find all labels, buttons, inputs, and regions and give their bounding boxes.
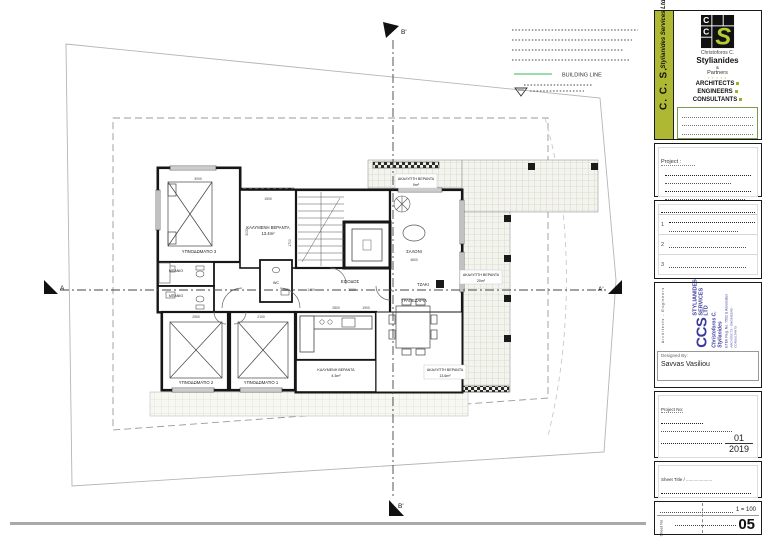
logo-right: C C S Christoforos C. Stylianides & Part…: [674, 11, 761, 139]
project-no-label: Project No:: [661, 407, 683, 413]
sheet-title-box: Sheet Title / .....................: [654, 461, 762, 498]
revision-row: 1: [659, 215, 757, 235]
svg-text:S: S: [715, 24, 731, 49]
scale-row: 1 = 100: [657, 504, 759, 516]
room-label-covered-veranda-bottom: ΚΑΛΥΜΕΝΗ ΒΕΡΑΝΤΑ: [317, 368, 355, 372]
stamp-line2: Christoforos C. Stylianides: [711, 286, 723, 348]
revision-number: 2: [661, 242, 669, 248]
room-label-open-veranda-right: ΑΚΑΛΥΠΤΗ ΒΕΡΑΝΤΑ: [427, 368, 464, 372]
fold-mark: [702, 503, 703, 533]
dim: 2550: [192, 315, 200, 319]
dim: 4600: [410, 258, 418, 262]
dim: 900: [283, 288, 289, 292]
floor-plan-canvas: B' B' A A' BUILDING LINE: [0, 0, 652, 543]
project-no-line: [661, 438, 722, 444]
scale-value: 1 = 100: [736, 507, 759, 513]
designed-by-label: Designed By:: [661, 353, 755, 358]
role-bullet-icon: [739, 98, 742, 101]
dim: 2100: [257, 315, 265, 319]
room-label-bedroom1: ΥΠΝΟΔΩΜΑΤΙΟ 1: [244, 380, 279, 385]
room-label-entrance: ΕΙΣΟΔΟΣ: [341, 279, 360, 284]
project-no-box: Project No: 01 2019: [654, 391, 762, 458]
room-area-open-veranda-top: 9m²: [413, 183, 420, 187]
section-marker-b-top: B': [383, 22, 407, 38]
project-box: Project :: [654, 143, 762, 197]
sheet-fold-line: [10, 522, 646, 525]
project-line: [665, 186, 751, 192]
project-inner: Project :: [658, 147, 758, 197]
role-engineers: ENGINEERS: [677, 88, 758, 96]
title-block: C. C. S. Stylianides Services Ltd C C S …: [654, 0, 764, 543]
room-area-open-veranda-right: 13.6m²: [439, 374, 451, 378]
address-line: [682, 112, 753, 118]
room-label-bath1: ΜΠΑΝΙΟ: [169, 269, 184, 273]
svg-text:C: C: [703, 15, 709, 25]
project-line: [665, 170, 751, 176]
section-label-a-right: A': [598, 286, 604, 293]
logo-green-bar: C. C. S. Stylianides Services Ltd: [655, 11, 674, 139]
section-label-a-left: A: [60, 285, 65, 292]
revision-number: 3: [661, 262, 669, 268]
project-line: [665, 178, 731, 184]
level-mark-icon: [515, 88, 584, 96]
room-label-covered-veranda-top: ΚΑΛΥΜΕΝΗ ΒΕΡΑΝΤΑ: [246, 225, 289, 230]
room-label-open-veranda-top: ΑΚΑΛΥΠΤΗ ΒΕΡΑΝΤΑ: [398, 177, 435, 181]
dim: 1400: [307, 288, 315, 292]
role-bullet-icon: [736, 82, 739, 85]
role-consultants: CONSULTANTS: [677, 96, 758, 104]
room-area-covered-veranda-top: 13.4m²: [261, 231, 275, 236]
revision-header: [659, 205, 757, 215]
room-label-bedroom3: ΥΠΝΟΔΩΜΑΤΙΟ 3: [182, 249, 217, 254]
section-marker-a-right: A': [598, 280, 622, 294]
dim: 1500: [264, 197, 272, 201]
drawing-sheet: B' B' A A' BUILDING LINE: [0, 0, 768, 543]
dim: 1700: [288, 239, 292, 247]
address-box: [677, 107, 758, 139]
sheet-no-leader: [675, 524, 736, 526]
room-label-bath2: ΜΠΑΝΙΟ: [169, 294, 184, 298]
dim: 3030: [245, 228, 249, 236]
logo-bar-name: Stylianides Services Ltd: [661, 0, 667, 72]
room-label-bedroom2: ΥΠΝΟΔΩΜΑΤΙΟ 2: [179, 380, 214, 385]
address-line: [682, 120, 753, 126]
section-label-b-bottom: B': [398, 503, 404, 510]
room-label-wc: WC: [273, 281, 279, 285]
room-label-living: ΣΑΛΟΝΙ: [406, 249, 422, 254]
revision-table: 1 2 3: [658, 204, 758, 275]
revision-number: 1: [661, 222, 669, 228]
issue-number: 01: [725, 433, 753, 444]
dim: 2800: [332, 306, 340, 310]
sheet-no-value: 05: [738, 516, 759, 533]
sheet-title-line: [661, 488, 751, 494]
svg-text:C: C: [703, 26, 709, 36]
revision-row: 2: [659, 235, 757, 255]
room-label-fireplace: ΤΖΑΚΙ: [417, 282, 429, 287]
designed-by-value: Savvas Vasiliou: [661, 361, 755, 368]
room-label-dining: ΤΡΑΠΕΖΑΡΙΑ: [401, 298, 427, 303]
stamp-box: Architects - Engineers CCS STYLIANIDES S…: [654, 282, 762, 388]
role-bullet-icon: [735, 90, 738, 93]
stamp-line3: ETEK Reg. No. 7502 & Associates: [724, 286, 728, 348]
firm-name-main: Stylianides: [677, 56, 758, 65]
issue-year: 2019: [725, 444, 753, 454]
dim: 1900: [362, 306, 370, 310]
room-label-open-veranda-east: ΑΚΑΛΥΠΤΗ ΒΕΡΑΝΤΑ: [463, 273, 500, 277]
legend: BUILDING LINE: [512, 30, 638, 96]
issue-date: 01 2019: [725, 433, 753, 454]
ccs-logo-icon: C C S: [701, 15, 735, 49]
revision-row: 3: [659, 255, 757, 274]
ccs-stamp: CCS STYLIANIDES SERVICES LTD Christoforo…: [693, 286, 737, 348]
address-line: [682, 129, 753, 135]
sheet-no-row: Sheet No 05: [657, 516, 759, 533]
section-marker-a-left: A: [44, 280, 65, 294]
stamp-ccs: CCS: [695, 318, 708, 348]
sheet-title-label: Sheet Title / .....................: [661, 477, 712, 482]
project-label: Project :: [661, 159, 695, 166]
sheet-title-inner: Sheet Title / .....................: [658, 465, 758, 498]
logo-box: C. C. S. Stylianides Services Ltd C C S …: [654, 10, 762, 140]
sheet-no-label: Sheet No: [659, 513, 664, 537]
building-line-label: BUILDING LINE: [562, 73, 602, 79]
scale-sheet-box: 1 = 100 Sheet No 05: [654, 501, 762, 535]
designed-by-box: Designed By: Savvas Vasiliou: [657, 351, 759, 381]
stamp-line4: ARCHITECTS - ENGINEERS - CONSULTANTS: [729, 286, 737, 348]
dim: 3000: [194, 177, 202, 181]
stamp-line1b: SERVICES LTD: [699, 279, 710, 315]
project-no-line: [661, 426, 732, 432]
revision-box: 1 2 3: [654, 200, 762, 279]
room-area-covered-veranda-bottom: 4.3m²: [331, 374, 341, 378]
section-label-b-top: B': [401, 29, 407, 36]
stamp-side-text: Architects - Engineers: [661, 286, 665, 344]
stamp-area: Architects - Engineers CCS STYLIANIDES S…: [657, 285, 759, 349]
project-no-inner: Project No: 01 2019: [658, 395, 758, 458]
dim: 2000: [348, 288, 356, 292]
role-architects: ARCHITECTS: [677, 80, 758, 88]
fireplace-icon: [436, 280, 444, 288]
project-no-line: [661, 418, 703, 424]
section-marker-b-bottom: B': [389, 500, 404, 516]
room-area-open-veranda-east: 20m²: [477, 279, 486, 283]
